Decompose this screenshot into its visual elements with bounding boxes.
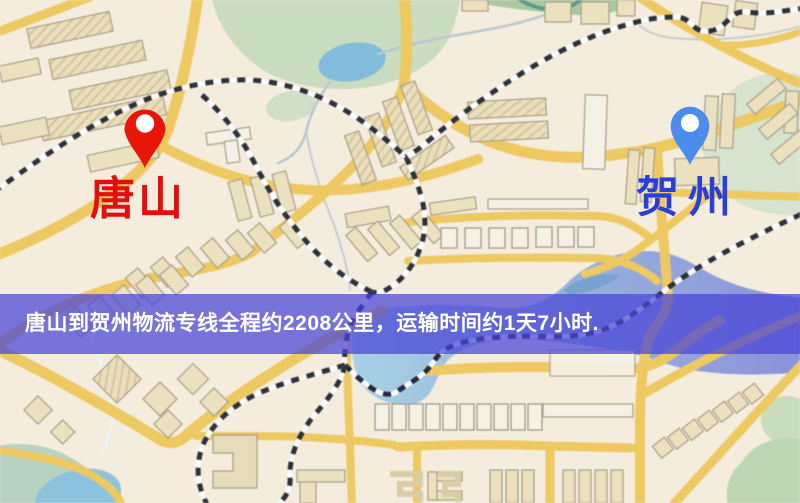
route-info-banner: 唐山到贺州物流专线全程约2208公里，运输时间约1天7小时. xyxy=(0,294,800,354)
pin-hole xyxy=(681,114,699,132)
destination-location-pin-icon[interactable] xyxy=(662,103,718,169)
route-info-text: 唐山到贺州物流专线全程约2208公里，运输时间约1天7小时. xyxy=(0,294,800,354)
city-map-image xyxy=(0,0,800,503)
origin-location-pin-icon[interactable] xyxy=(115,102,175,172)
destination-city-label: 贺州 xyxy=(636,177,740,220)
origin-city-label: 唐山 xyxy=(90,176,186,221)
map-view: 唐山 贺州 唐山到贺州物流专线全程约2208公里，运输时间约1天7小时. xyxy=(0,0,800,503)
pin-hole xyxy=(136,114,154,132)
